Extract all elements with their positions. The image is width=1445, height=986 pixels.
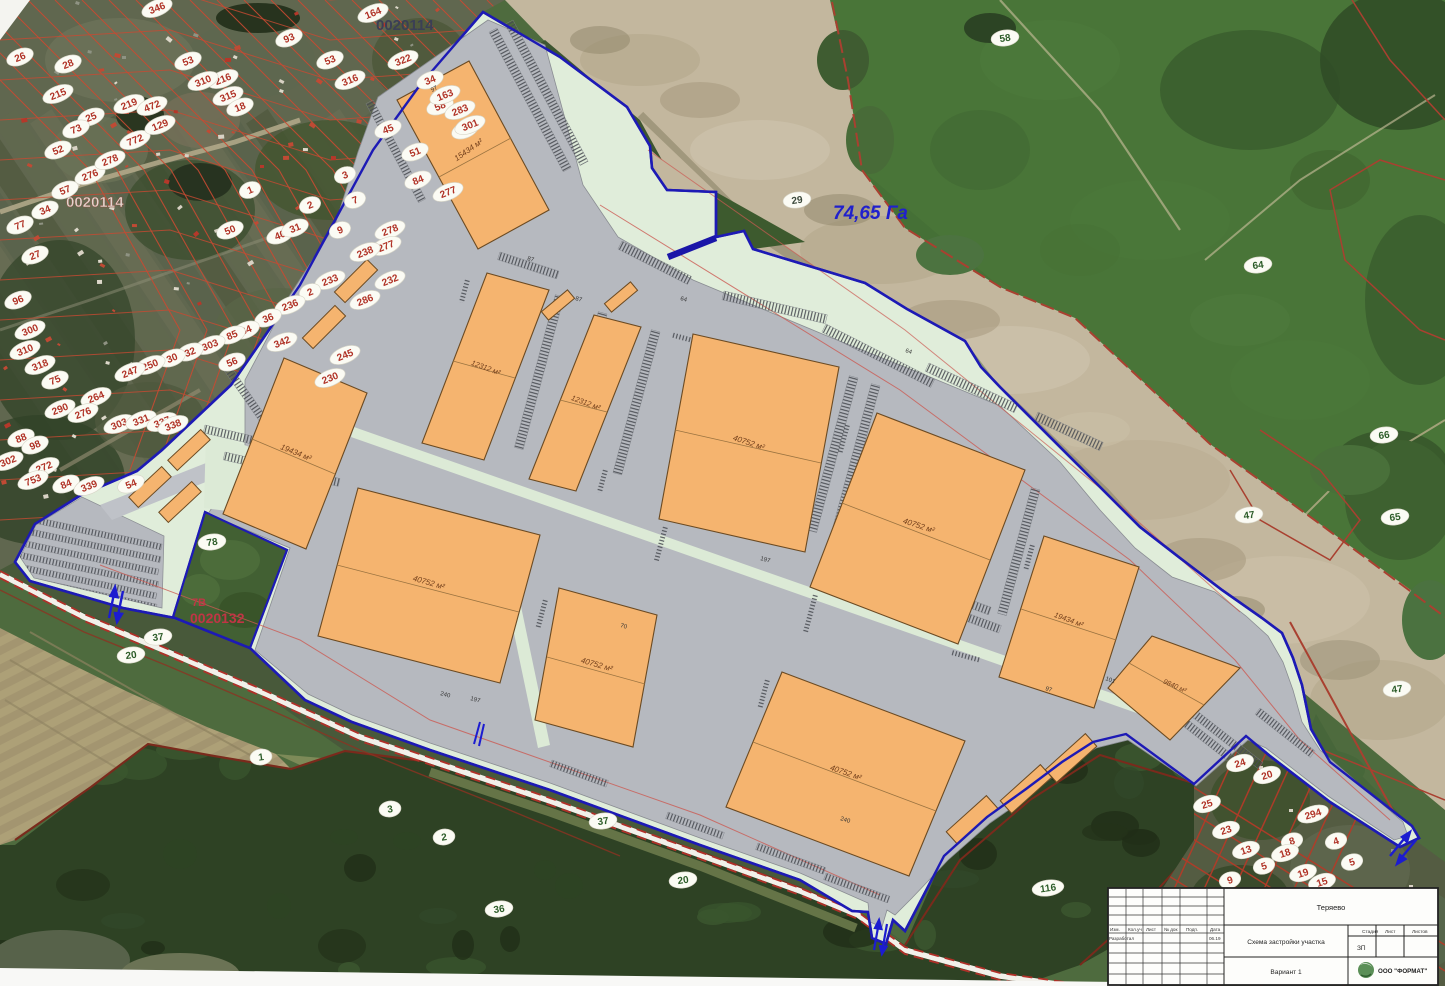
svg-text:36: 36 — [493, 904, 506, 917]
svg-text:06.19: 06.19 — [1209, 936, 1221, 941]
svg-text:20: 20 — [125, 650, 138, 663]
svg-text:Листов: Листов — [1412, 929, 1428, 935]
svg-text:Разработал: Разработал — [1109, 936, 1134, 941]
svg-text:37: 37 — [152, 632, 165, 645]
svg-text:Схема застройки участка: Схема застройки участка — [1247, 938, 1325, 946]
svg-text:0020132: 0020132 — [190, 610, 245, 626]
svg-text:Дата: Дата — [1210, 927, 1221, 932]
svg-text:Подп.: Подп. — [1186, 927, 1198, 932]
svg-text:7B: 7B — [192, 597, 206, 609]
svg-text:ЗП: ЗП — [1357, 945, 1366, 952]
svg-text:0020114: 0020114 — [66, 194, 124, 211]
svg-text:47: 47 — [1391, 684, 1404, 697]
svg-text:66: 66 — [1378, 430, 1391, 443]
svg-text:Стадия: Стадия — [1362, 929, 1379, 935]
svg-text:20: 20 — [677, 875, 690, 888]
svg-text:Кол.уч: Кол.уч — [1128, 927, 1142, 932]
svg-text:Лист: Лист — [1385, 929, 1396, 935]
svg-text:58: 58 — [999, 33, 1012, 46]
svg-text:64: 64 — [1252, 260, 1265, 273]
svg-text:29: 29 — [791, 195, 804, 208]
svg-text:78: 78 — [206, 537, 219, 550]
svg-text:116: 116 — [1039, 882, 1057, 895]
svg-text:Вариант 1: Вариант 1 — [1270, 969, 1302, 976]
svg-text:Теряево: Теряево — [1317, 903, 1346, 912]
svg-text:ООО "ФОРМАТ": ООО "ФОРМАТ" — [1378, 968, 1427, 975]
svg-text:74,65 Га: 74,65 Га — [833, 203, 908, 224]
svg-text:0020114: 0020114 — [376, 17, 434, 34]
svg-text:65: 65 — [1389, 512, 1402, 525]
svg-text:47: 47 — [1243, 510, 1256, 523]
svg-text:№ док: № док — [1164, 927, 1178, 932]
svg-text:37: 37 — [597, 816, 610, 829]
svg-text:Изм.: Изм. — [1110, 927, 1120, 932]
svg-text:Лист: Лист — [1146, 927, 1157, 932]
